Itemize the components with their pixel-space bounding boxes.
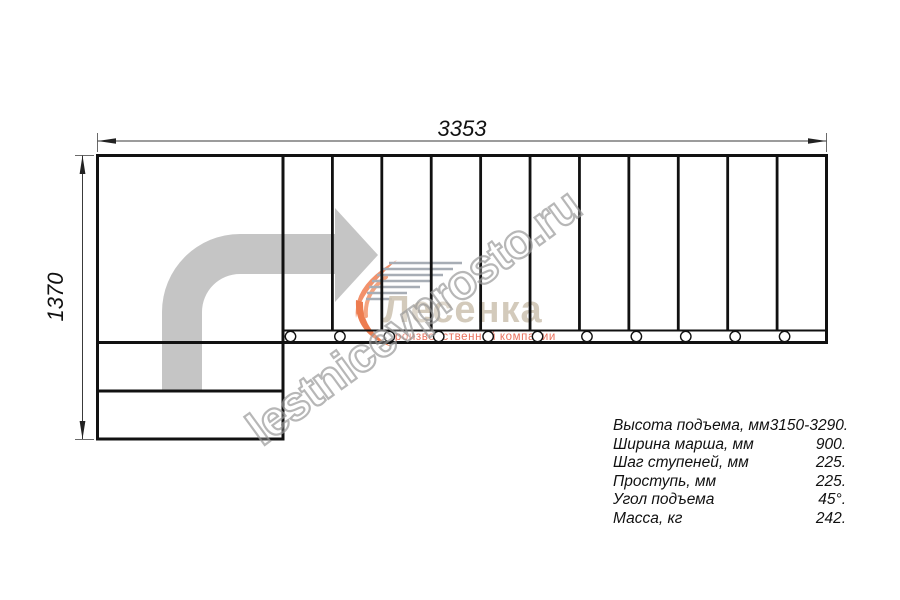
stringer-bolt-icon <box>779 331 789 341</box>
stringer-bolt-icon <box>285 331 295 341</box>
dimension-left: 1370 <box>43 156 94 440</box>
stringer-bolt-icon <box>532 331 542 341</box>
spec-row: Масса, кг 242. <box>613 510 846 529</box>
stringer-bolt-icon <box>483 331 493 341</box>
stringer-bolt-icon <box>730 331 740 341</box>
spec-row: Ширина марша, мм 900. <box>613 436 846 455</box>
spec-value: 45°. <box>818 491 846 510</box>
spec-label: Угол подъема <box>613 491 714 510</box>
dimension-top: 3353 <box>98 116 827 152</box>
stringer-bolt-icon <box>582 331 592 341</box>
drawing-canvas: Лесенка производственной компании 3353 <box>0 0 900 600</box>
spec-row: Высота подъема, мм 3150-3290. <box>613 417 846 436</box>
spec-value: 3150-3290. <box>770 417 848 436</box>
dim-arrow-left-icon <box>98 138 117 144</box>
spec-row: Угол подъема 45°. <box>613 491 846 510</box>
spec-value: 225. <box>816 473 846 492</box>
spec-label: Ширина марша, мм <box>613 436 754 455</box>
dim-arrow-down-icon <box>80 421 86 439</box>
stringer-bolt-icon <box>681 331 691 341</box>
spec-label: Шаг ступеней, мм <box>613 454 749 473</box>
spec-row: Проступь, мм 225. <box>613 473 846 492</box>
dim-arrow-up-icon <box>80 156 86 175</box>
spec-label: Масса, кг <box>613 510 682 529</box>
dimension-height-label: 1370 <box>43 272 68 322</box>
spec-value: 242. <box>816 510 846 529</box>
stringer-bolt-icon <box>631 331 641 341</box>
dimension-width-label: 3353 <box>438 116 488 141</box>
spec-value: 225. <box>816 454 846 473</box>
spec-table: Высота подъема, мм 3150-3290. Ширина мар… <box>613 417 846 528</box>
spec-value: 900. <box>816 436 846 455</box>
spec-label: Высота подъема, мм <box>613 417 770 436</box>
dim-arrow-right-icon <box>808 138 827 144</box>
spec-row: Шаг ступеней, мм 225. <box>613 454 846 473</box>
spec-label: Проступь, мм <box>613 473 716 492</box>
